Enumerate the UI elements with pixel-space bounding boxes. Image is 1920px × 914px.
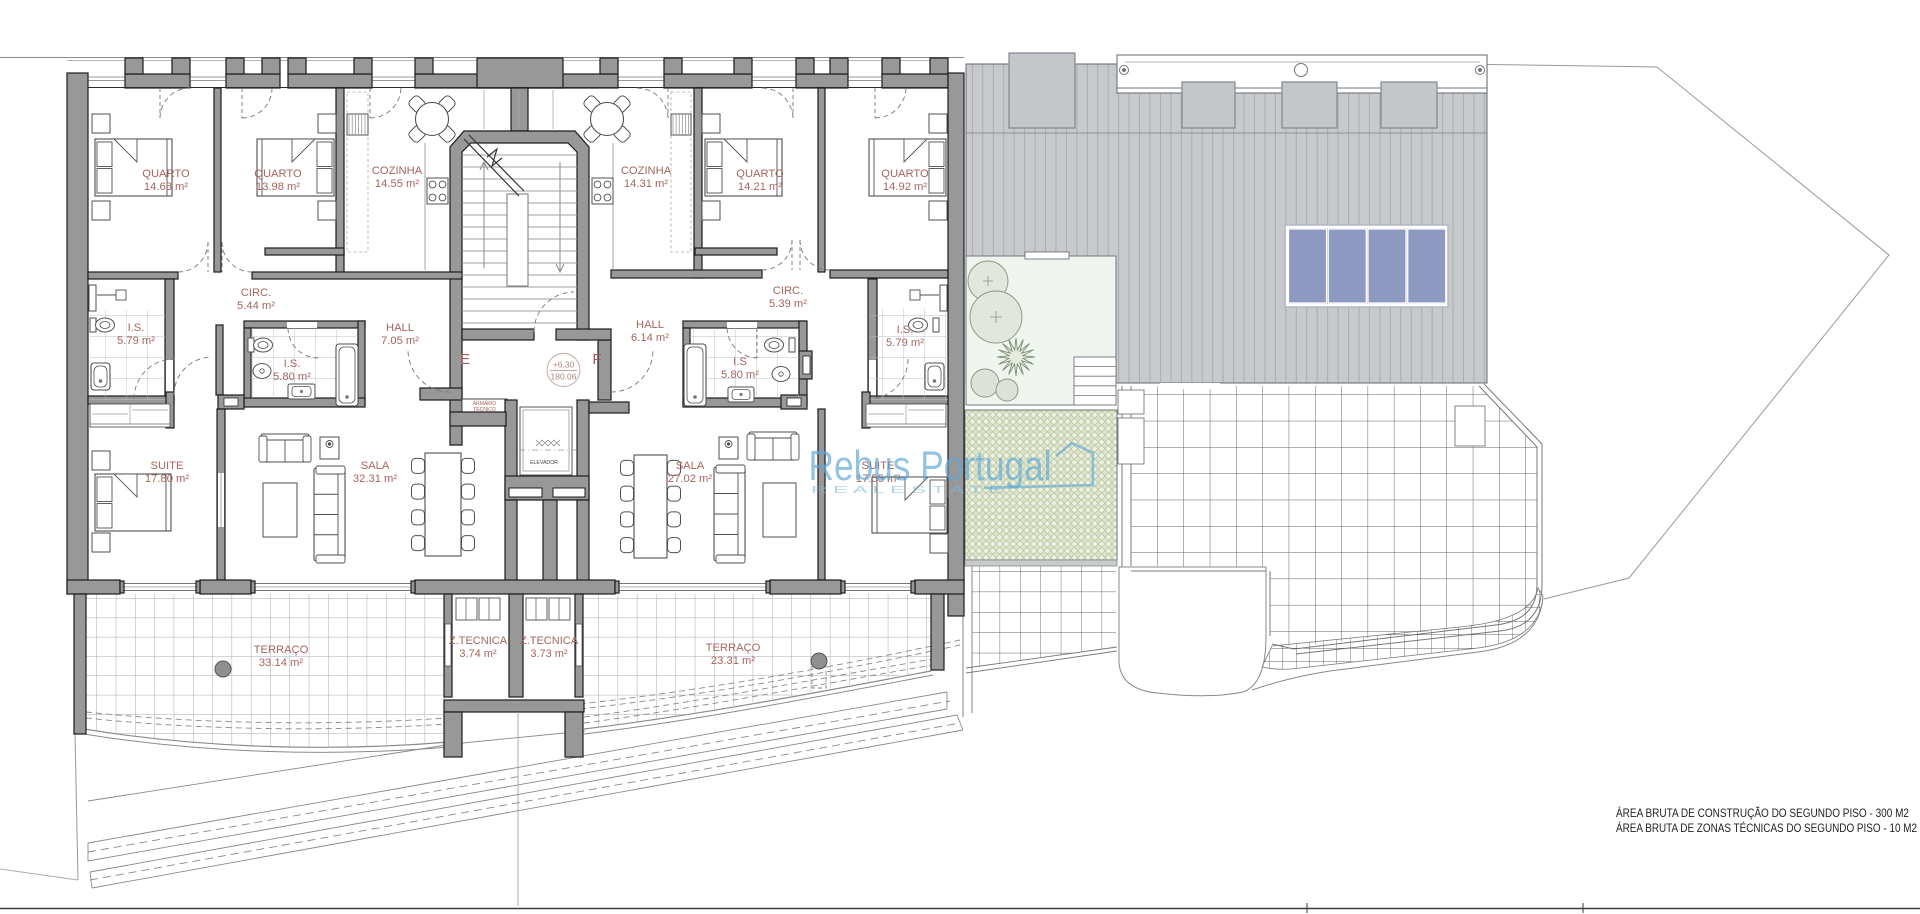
svg-text:QUARTO: QUARTO — [736, 168, 784, 180]
svg-text:TERRAÇO: TERRAÇO — [254, 644, 309, 656]
svg-text:3.73 m²: 3.73 m² — [530, 648, 568, 660]
svg-text:COZINHA: COZINHA — [372, 165, 423, 177]
svg-text:ÁREA BRUTA DE ZONAS TÉCNICAS D: ÁREA BRUTA DE ZONAS TÉCNICAS DO SEGUNDO … — [1616, 822, 1917, 835]
svg-text:CIRC.: CIRC. — [241, 287, 271, 299]
svg-text:+6.30: +6.30 — [553, 360, 575, 370]
svg-text:R E A L E S T A T E: R E A L E S T A T E — [811, 485, 1004, 496]
svg-text:ELEVADOR: ELEVADOR — [530, 460, 558, 466]
svg-text:SUITE: SUITE — [151, 460, 184, 472]
svg-text:5.79 m²: 5.79 m² — [886, 337, 924, 349]
svg-text:I.S.: I.S. — [128, 322, 145, 334]
svg-text:I.S.: I.S. — [284, 358, 301, 370]
svg-text:14.68 m²: 14.68 m² — [144, 181, 188, 193]
svg-text:14.21 m²: 14.21 m² — [738, 181, 782, 193]
svg-text:5.39 m²: 5.39 m² — [769, 298, 807, 310]
svg-text:13.98 m²: 13.98 m² — [256, 181, 300, 193]
svg-text:5.79 m²: 5.79 m² — [117, 335, 155, 347]
svg-text:17.80 m²: 17.80 m² — [145, 473, 189, 485]
svg-text:E: E — [460, 351, 470, 368]
svg-text:SALA: SALA — [361, 460, 390, 472]
svg-text:23.31 m²: 23.31 m² — [711, 655, 755, 667]
svg-text:CIRC.: CIRC. — [773, 285, 803, 297]
svg-text:Z.TECNICA: Z.TECNICA — [449, 635, 508, 647]
svg-text:27.02 m²: 27.02 m² — [668, 473, 712, 485]
svg-text:COZINHA: COZINHA — [621, 165, 672, 177]
svg-text:14.31 m²: 14.31 m² — [624, 178, 668, 190]
svg-text:5.80 m²: 5.80 m² — [721, 369, 759, 381]
svg-text:TERRAÇO: TERRAÇO — [706, 642, 761, 654]
svg-text:3.74 m²: 3.74 m² — [459, 648, 497, 660]
svg-text:Rebus Portugal: Rebus Portugal — [809, 442, 1052, 489]
svg-text:ÁREA BRUTA DE CONSTRUÇÃO DO SE: ÁREA BRUTA DE CONSTRUÇÃO DO SEGUNDO PISO… — [1616, 807, 1909, 820]
svg-text:QUARTO: QUARTO — [881, 168, 929, 180]
svg-text:6.14 m²: 6.14 m² — [631, 332, 669, 344]
svg-text:SALA: SALA — [676, 460, 705, 472]
svg-text:QUARTO: QUARTO — [142, 168, 190, 180]
svg-text:HALL: HALL — [636, 319, 664, 331]
svg-text:HALL: HALL — [386, 322, 414, 334]
svg-text:I.S: I.S — [733, 356, 747, 368]
svg-text:I.S.: I.S. — [897, 324, 914, 336]
svg-text:Z.TECNICA: Z.TECNICA — [520, 635, 579, 647]
svg-text:7.05 m²: 7.05 m² — [381, 335, 419, 347]
svg-text:ARMÁRIO: ARMÁRIO — [473, 400, 496, 407]
svg-text:180.06: 180.06 — [551, 372, 577, 382]
svg-text:32.31 m²: 32.31 m² — [353, 473, 397, 485]
svg-text:F: F — [592, 351, 601, 368]
svg-text:14.55 m²: 14.55 m² — [375, 178, 419, 190]
svg-text:5.44 m²: 5.44 m² — [237, 300, 275, 312]
svg-text:QUARTO: QUARTO — [254, 168, 302, 180]
svg-text:5.80 m²: 5.80 m² — [273, 371, 311, 383]
svg-text:14.92 m²: 14.92 m² — [883, 181, 927, 193]
svg-text:33.14 m²: 33.14 m² — [259, 657, 303, 669]
